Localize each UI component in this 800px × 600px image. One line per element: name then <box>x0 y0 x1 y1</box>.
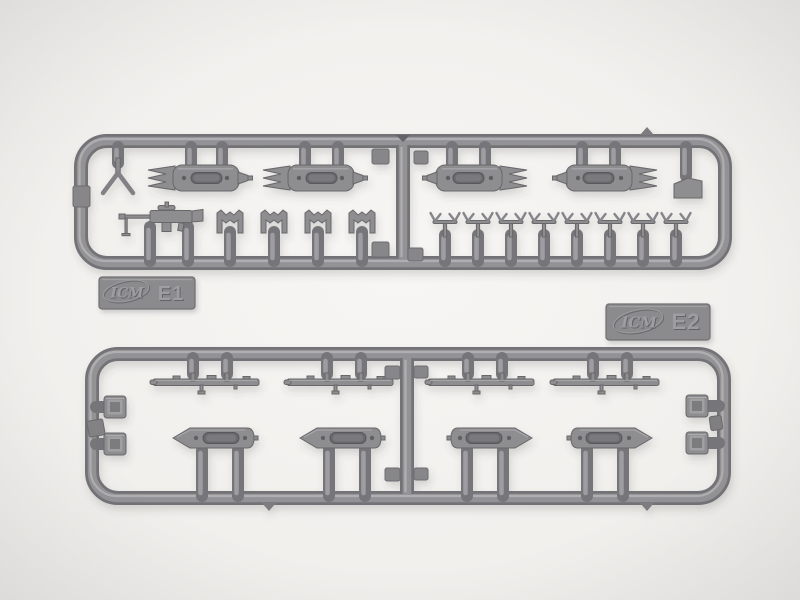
sprue-photo: ICM ICM E1 E1 ICM ICM E2 E2 <box>0 0 800 600</box>
photo-vignette <box>0 0 800 600</box>
photo: ICM ICM E1 E1 ICM ICM E2 E2 <box>0 0 800 600</box>
